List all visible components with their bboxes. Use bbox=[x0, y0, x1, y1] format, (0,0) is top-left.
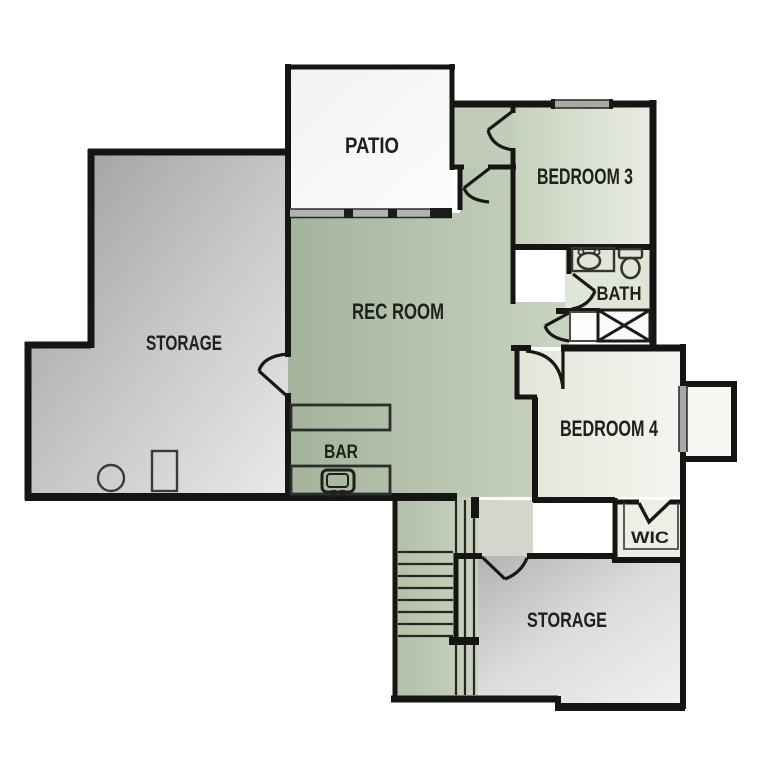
stair-rail-stub-top bbox=[471, 497, 479, 518]
bedroom4-window bbox=[679, 386, 687, 452]
room-storage-lower-label: STORAGE bbox=[527, 609, 607, 632]
room-bedroom3-label: BEDROOM 3 bbox=[537, 164, 633, 189]
room-storage-left-label: STORAGE bbox=[146, 332, 222, 355]
shower-x-icon bbox=[598, 310, 650, 341]
patio-sliding-door bbox=[290, 208, 452, 218]
bedroom3-window bbox=[551, 99, 613, 109]
room-wic-label: WIC bbox=[631, 528, 669, 547]
room-rec-label: REC ROOM bbox=[352, 299, 444, 324]
bedroom4-bay-floor bbox=[687, 384, 733, 459]
floor-plan: PATIO STORAGE REC ROOM BEDROOM 3 BATH BA… bbox=[0, 0, 779, 768]
room-patio-label: PATIO bbox=[345, 133, 399, 158]
linen-closet-box bbox=[570, 312, 598, 341]
floor-plan-svg: PATIO STORAGE REC ROOM BEDROOM 3 BATH BA… bbox=[0, 0, 779, 768]
room-bedroom4-label: BEDROOM 4 bbox=[560, 416, 659, 441]
stair-vestibule-floor bbox=[478, 500, 533, 556]
room-bath-label: BATH bbox=[597, 284, 642, 305]
room-bar-label: BAR bbox=[324, 442, 358, 463]
